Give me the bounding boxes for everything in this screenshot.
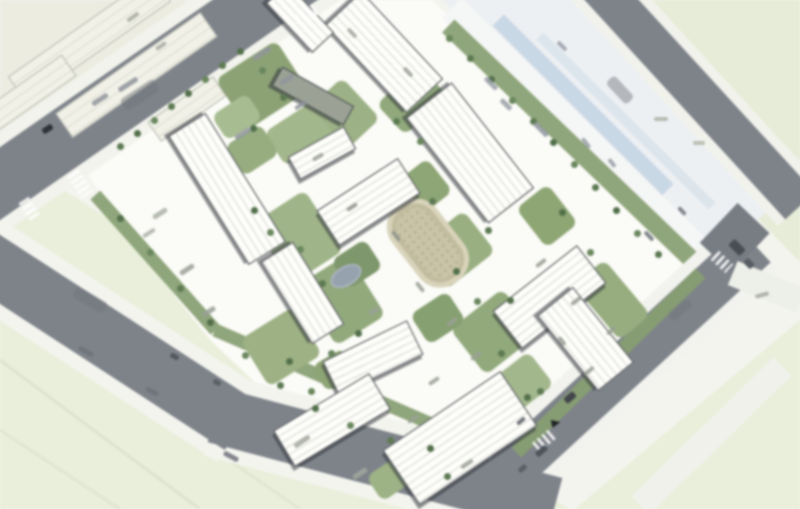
tree [286,358,293,365]
tree [151,117,158,124]
annotation-smudge [693,141,705,145]
tree [453,268,460,275]
tree [117,143,124,150]
tree [251,207,258,214]
site-plan [0,0,800,509]
tree [387,437,394,444]
tree [355,330,362,337]
tree [259,67,266,74]
tree [168,103,175,110]
tree [587,249,594,256]
tree [347,422,354,429]
tree [312,405,319,412]
tree [277,382,284,389]
tree [117,215,124,222]
tree [498,350,505,357]
tree [509,97,516,104]
tree [592,184,599,191]
tree [177,285,184,292]
tree [550,139,557,146]
tree [507,297,514,304]
tree [474,298,481,305]
tree [571,161,578,168]
tree [267,229,274,236]
tree [219,62,226,69]
annotation-smudge [654,117,668,121]
tree [537,388,544,395]
tree [134,130,141,137]
tree [417,138,424,145]
tree [524,394,531,401]
tree [559,209,566,216]
tree [319,280,326,287]
tree [467,55,474,62]
tree [202,76,209,83]
tree [242,352,249,359]
tree [207,319,214,326]
tree [613,207,620,214]
tree [655,251,662,258]
tree [427,445,434,452]
tree [444,473,451,480]
tree [185,90,192,97]
tree [634,230,641,237]
tree [280,94,287,101]
tree [393,118,400,125]
tree [237,48,244,55]
tree [446,35,453,42]
tree [308,388,315,395]
site-plan-layers [0,0,800,509]
tree [328,350,335,357]
tree [297,246,304,253]
tree [147,249,154,256]
tree [429,198,436,205]
tree [485,227,492,234]
